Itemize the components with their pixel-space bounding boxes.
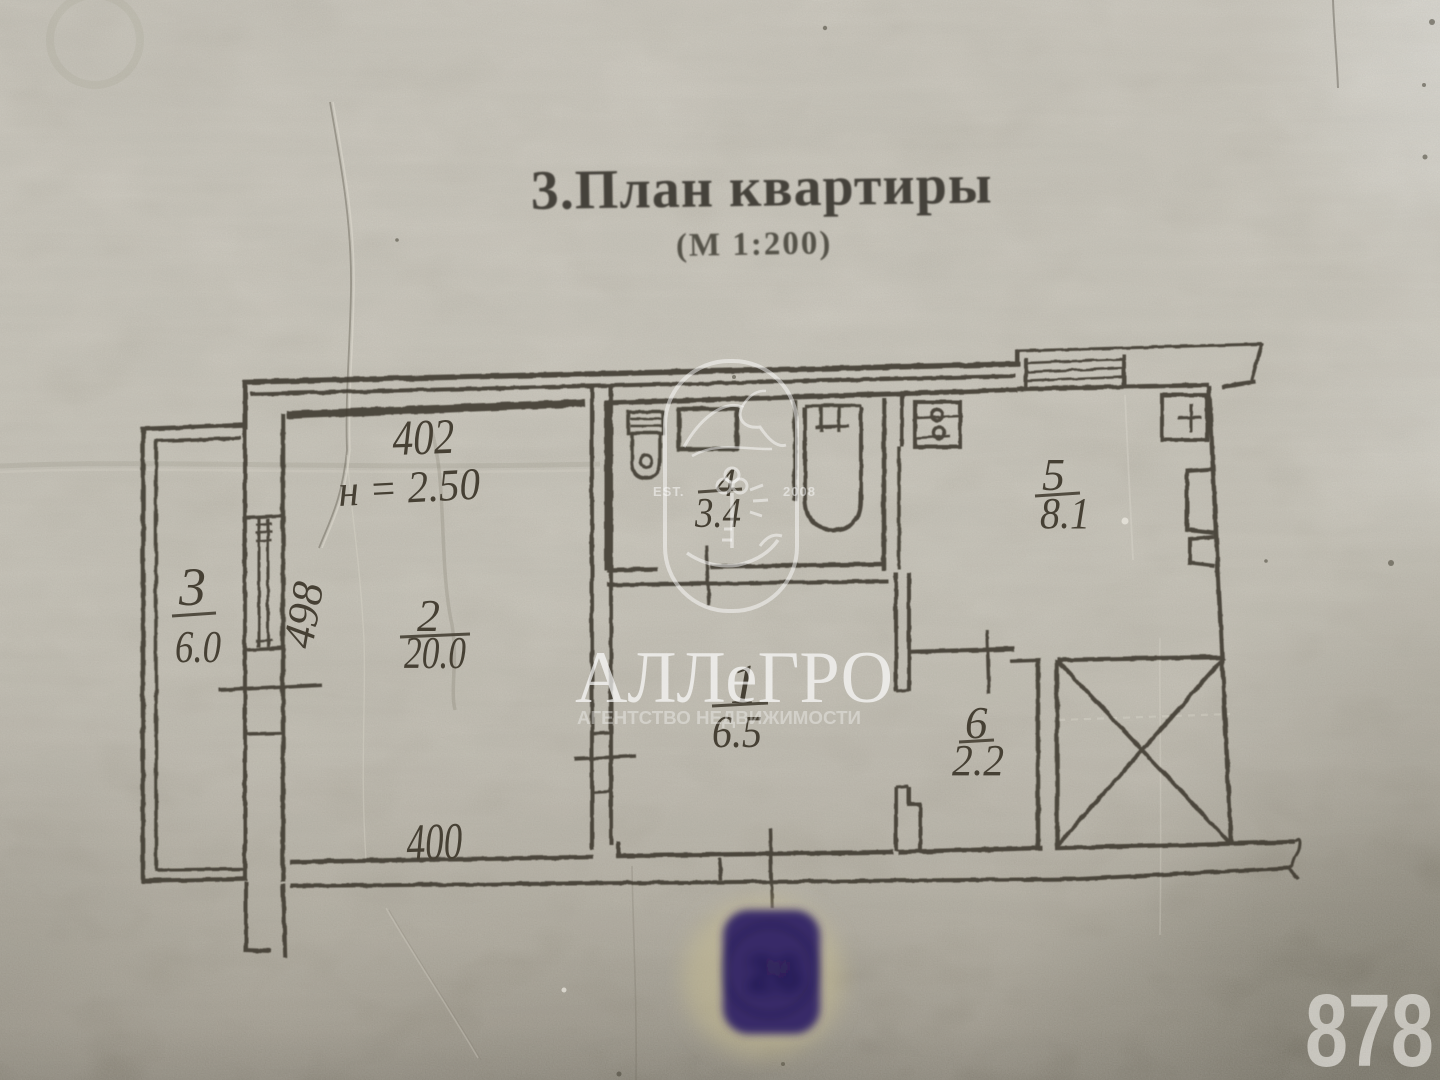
svg-text:26: 26 [747,946,803,1002]
